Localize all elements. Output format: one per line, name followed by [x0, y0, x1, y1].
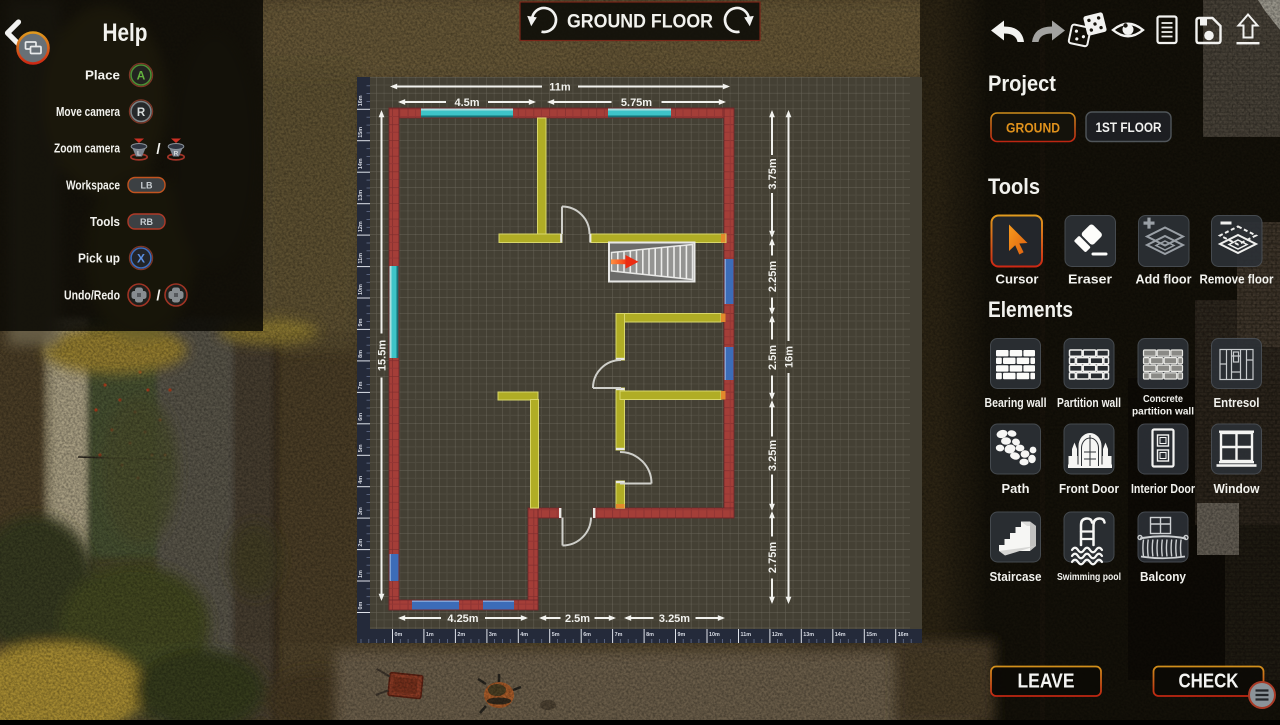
svg-text:partition wall: partition wall [1132, 406, 1194, 418]
svg-text:0m: 0m [358, 602, 364, 610]
svg-text:4.5m: 4.5m [454, 97, 479, 109]
svg-text:0m: 0m [395, 632, 403, 638]
svg-text:X: X [137, 252, 145, 266]
svg-text:GROUND: GROUND [1006, 121, 1060, 136]
svg-text:Help: Help [103, 19, 148, 47]
svg-text:Front Door: Front Door [1059, 481, 1119, 496]
svg-text:11m: 11m [741, 632, 752, 638]
svg-text:2.5m: 2.5m [565, 613, 590, 625]
svg-text:6m: 6m [358, 413, 364, 421]
svg-text:9m: 9m [358, 318, 364, 326]
svg-text:1m: 1m [358, 570, 364, 578]
svg-text:Eraser: Eraser [1068, 272, 1112, 287]
svg-text:7m: 7m [358, 381, 364, 389]
svg-text:Cursor: Cursor [996, 272, 1039, 287]
svg-text:10m: 10m [358, 284, 364, 295]
svg-text:CHECK: CHECK [1179, 671, 1239, 693]
svg-text:4m: 4m [358, 476, 364, 484]
svg-text:Project: Project [988, 71, 1057, 96]
svg-text:3.25m: 3.25m [659, 613, 690, 625]
svg-text:LB: LB [141, 181, 153, 191]
svg-text:1m: 1m [426, 632, 434, 638]
svg-text:16m: 16m [358, 95, 364, 106]
svg-text:7m: 7m [615, 632, 623, 638]
svg-text:10m: 10m [709, 632, 720, 638]
svg-text:Tools: Tools [90, 215, 120, 229]
svg-text:2.75m: 2.75m [767, 542, 779, 573]
svg-text:5m: 5m [358, 444, 364, 452]
svg-text:12m: 12m [358, 221, 364, 232]
svg-text:R: R [174, 151, 179, 158]
svg-text:GROUND FLOOR: GROUND FLOOR [567, 11, 713, 33]
svg-text:6m: 6m [583, 632, 591, 638]
svg-text:16m: 16m [784, 346, 796, 368]
svg-text:Add floor: Add floor [1136, 272, 1192, 287]
svg-text:1ST FLOOR: 1ST FLOOR [1096, 120, 1162, 135]
svg-text:Entresol: Entresol [1214, 395, 1260, 410]
svg-text:4m: 4m [520, 632, 528, 638]
svg-text:16m: 16m [898, 632, 909, 638]
svg-text:3.75m: 3.75m [767, 158, 779, 189]
svg-text:Undo/Redo: Undo/Redo [64, 289, 120, 303]
svg-text:LEAVE: LEAVE [1018, 671, 1075, 693]
svg-text:3m: 3m [489, 632, 497, 638]
svg-text:Window: Window [1214, 481, 1261, 496]
svg-text:Tools: Tools [988, 174, 1040, 199]
svg-text:15m: 15m [358, 127, 364, 138]
svg-text:15.5m: 15.5m [377, 340, 389, 371]
svg-text:Bearing wall: Bearing wall [985, 395, 1047, 410]
svg-text:11m: 11m [549, 82, 571, 94]
svg-text:8m: 8m [646, 632, 654, 638]
svg-text:4.25m: 4.25m [447, 613, 478, 625]
svg-text:3m: 3m [358, 507, 364, 515]
svg-text:Zoom camera: Zoom camera [54, 142, 121, 156]
svg-text:Concrete: Concrete [1143, 393, 1183, 405]
svg-text:14m: 14m [835, 632, 846, 638]
svg-text:2m: 2m [358, 539, 364, 547]
svg-text:2.5m: 2.5m [767, 345, 779, 370]
svg-text:RB: RB [140, 217, 153, 227]
svg-text:Elements: Elements [988, 297, 1073, 322]
svg-text:2.25m: 2.25m [767, 261, 779, 292]
svg-text:Partition wall: Partition wall [1057, 395, 1121, 410]
svg-text:9m: 9m [678, 632, 686, 638]
svg-text:Staircase: Staircase [990, 569, 1042, 584]
svg-text:Path: Path [1002, 481, 1030, 496]
svg-text:13m: 13m [358, 190, 364, 201]
svg-text:Pick up: Pick up [78, 252, 120, 266]
svg-text:12m: 12m [772, 632, 783, 638]
svg-text:15m: 15m [866, 632, 877, 638]
svg-text:2m: 2m [457, 632, 465, 638]
svg-text:Place: Place [85, 69, 120, 83]
svg-text:Remove floor: Remove floor [1200, 272, 1274, 287]
svg-text:14m: 14m [358, 158, 364, 169]
svg-text:R: R [137, 107, 146, 119]
svg-text:Interior Door: Interior Door [1131, 481, 1195, 496]
svg-text:Swimming pool: Swimming pool [1057, 571, 1121, 583]
svg-text:5m: 5m [552, 632, 560, 638]
svg-text:8m: 8m [358, 350, 364, 358]
svg-text:3.25m: 3.25m [767, 440, 779, 471]
svg-text:Move camera: Move camera [56, 105, 121, 119]
svg-text:11m: 11m [358, 253, 364, 264]
svg-text:A: A [137, 69, 146, 83]
svg-text:13m: 13m [803, 632, 814, 638]
svg-text:5.75m: 5.75m [621, 97, 652, 109]
svg-text:Balcony: Balcony [1140, 569, 1187, 584]
svg-text:L: L [137, 151, 141, 158]
svg-text:Workspace: Workspace [66, 179, 120, 193]
